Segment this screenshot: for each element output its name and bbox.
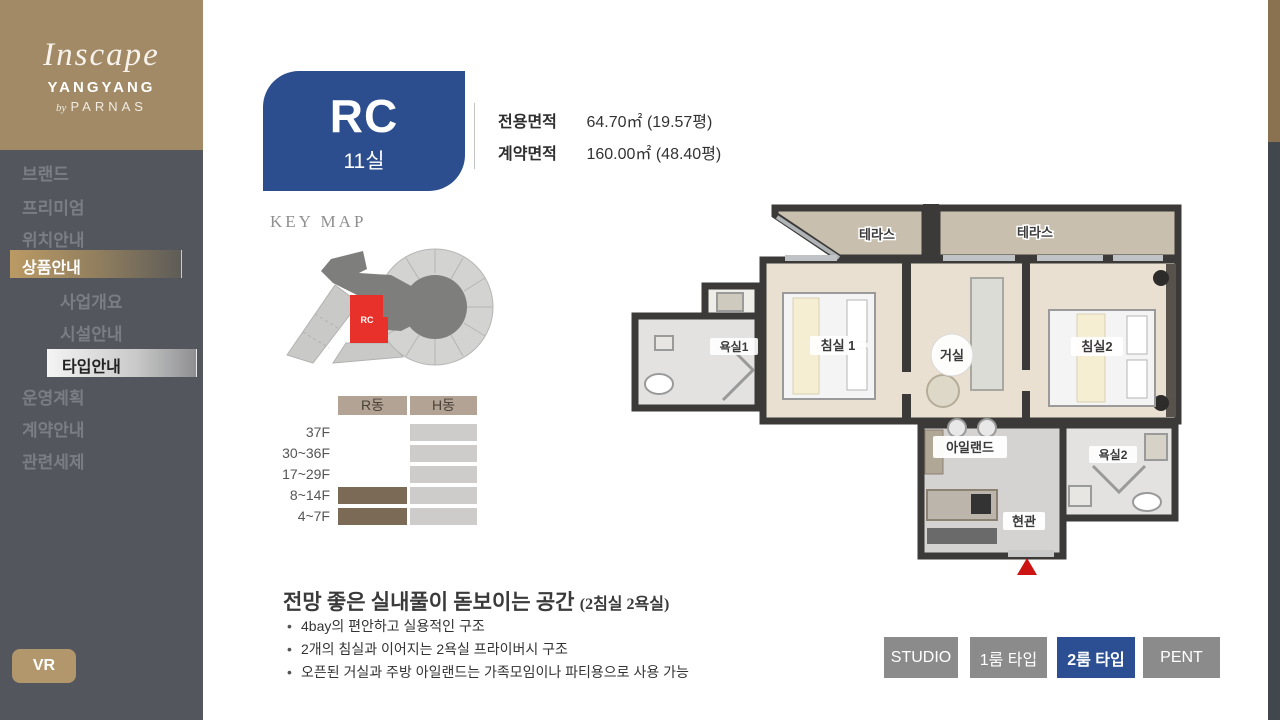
bullet-text: 2개의 침실과 이어지는 2욕실 프라이버시 구조 <box>301 641 568 657</box>
floor-table-header-1: H동 <box>410 396 477 415</box>
sidebar-item-label: 운영계획 <box>22 384 85 409</box>
sidebar-item-label: 브랜드 <box>22 160 69 185</box>
sidebar-item-label: 타입안내 <box>62 353 121 377</box>
sidebar-item-label: 계약안내 <box>22 416 85 441</box>
island-label: 아일랜드 <box>946 440 994 455</box>
floor-table-row-label: 17~29F <box>275 466 330 483</box>
description-bullet-1: •2개의 침실과 이어지는 2욕실 프라이버시 구조 <box>287 639 568 659</box>
unit-type-code: RC <box>263 89 465 143</box>
sidebar-item-label: 위치안내 <box>22 226 85 251</box>
bullet-text: 4bay의 편안하고 실용적인 구조 <box>301 618 485 634</box>
type-tab-2[interactable]: 2룸 타입 <box>1057 637 1135 678</box>
floor-cell-r <box>338 508 407 525</box>
sink-1 <box>717 293 743 311</box>
sidebar-item-3[interactable]: 상품안내 <box>10 250 182 278</box>
sidebar-item-9[interactable]: 관련세제 <box>0 448 203 470</box>
floor-cell-r <box>338 445 407 462</box>
brand-logo-sub: YANGYANG <box>48 79 156 96</box>
toilet-2 <box>1133 493 1161 511</box>
bedroom1-label: 침실 1 <box>821 338 856 353</box>
sidebar-item-6[interactable]: 타입안내 <box>47 349 197 377</box>
type-tab-1[interactable]: 1룸 타입 <box>970 637 1047 678</box>
floor-cell-h <box>410 424 477 441</box>
unit-type-badge: RC 11실 <box>263 71 465 191</box>
floor-table-row-label: 37F <box>275 424 330 441</box>
bedroom2-closet <box>1166 264 1176 417</box>
floor-table-row-label: 4~7F <box>275 508 330 525</box>
sidebar-item-label: 사업개요 <box>60 288 123 313</box>
bedroom2-label: 침실2 <box>1081 339 1112 354</box>
bullet-dot-icon: • <box>287 641 301 657</box>
bullet-dot-icon: • <box>287 618 301 634</box>
entrance-label: 현관 <box>1012 514 1036 529</box>
floor-table-row-label: 8~14F <box>275 487 330 504</box>
stool-1 <box>948 419 966 437</box>
area-row-contract: 계약면적 160.00㎡ (48.40평) <box>498 140 721 164</box>
sidebar-item-8[interactable]: 계약안내 <box>0 416 203 438</box>
description-heading: 전망 좋은 실내풀이 돋보이는 공간 (2침실 2욕실) <box>283 586 669 616</box>
stool-2 <box>978 419 996 437</box>
lounge-chair <box>927 375 959 407</box>
sidebar-item-label: 프리미엄 <box>22 194 85 219</box>
sink-2 <box>1145 434 1167 460</box>
area-row-exclusive: 전용면적 64.70㎡ (19.57평) <box>498 108 712 132</box>
living-label: 거실 <box>940 348 964 363</box>
floor-table-row-label: 30~36F <box>275 445 330 462</box>
floor-cell-h <box>410 466 477 483</box>
floor-cell-r <box>338 466 407 483</box>
entrance-arrow-icon <box>1017 558 1037 575</box>
terrace-1-label: 테라스 <box>859 227 895 242</box>
brand-logo-byline: byPARNAS <box>56 99 147 114</box>
kitchen-lower-cabinet <box>927 528 997 544</box>
terrace-2-label: 테라스 <box>1017 225 1053 240</box>
sidebar-item-label: 시설안내 <box>60 320 123 345</box>
sidebar-item-0[interactable]: 브랜드 <box>0 160 203 182</box>
toilet-1 <box>645 374 673 394</box>
sidebar-item-2[interactable]: 위치안내 <box>0 226 203 248</box>
description-bullet-0: •4bay의 편안하고 실용적인 구조 <box>287 616 485 636</box>
floor-cell-r <box>338 424 407 441</box>
cooktop <box>971 494 991 514</box>
sidebar-item-7[interactable]: 운영계획 <box>0 384 203 406</box>
sidebar-item-label: 관련세제 <box>22 448 85 473</box>
vr-button[interactable]: VR <box>12 649 76 683</box>
edge-strip-gold <box>1268 0 1280 142</box>
entrance-door <box>1008 550 1054 557</box>
type-tab-0[interactable]: STUDIO <box>884 637 958 678</box>
floor-cell-h <box>410 508 477 525</box>
floor-cell-h <box>410 487 477 504</box>
unit-room-count: 11실 <box>263 145 465 175</box>
keymap-title: KEY MAP <box>270 212 366 232</box>
keymap-tower-core <box>403 275 467 339</box>
edge-strip-dark <box>1268 142 1280 720</box>
brand-logo: Inscape YANGYANG byPARNAS <box>0 0 203 150</box>
floor-plan: 테라스 테라스 침실 1 거실 침실2 욕실1 아일랜드 욕실2 현관 <box>625 198 1185 586</box>
bullet-text: 오픈된 거실과 주방 아일랜드는 가족모임이나 파티용으로 사용 가능 <box>301 664 689 680</box>
area-divider <box>474 103 475 169</box>
sidebar-item-4[interactable]: 사업개요 <box>0 288 203 310</box>
floor-table-header-0: R동 <box>338 396 407 415</box>
terrace-2-floor <box>937 208 1178 258</box>
brand-logo-script: Inscape <box>43 37 160 74</box>
keymap-highlight-label: RC <box>361 315 374 325</box>
sofa <box>971 278 1003 390</box>
sidebar-item-1[interactable]: 프리미엄 <box>0 194 203 216</box>
bullet-dot-icon: • <box>287 664 301 680</box>
type-tab-3[interactable]: PENT <box>1143 637 1220 678</box>
floor-cell-r <box>338 487 407 504</box>
terrace-1-floor <box>775 208 925 258</box>
bath1-label: 욕실1 <box>720 339 749 354</box>
bath2-label: 욕실2 <box>1099 447 1128 462</box>
sidebar: Inscape YANGYANG byPARNAS 브랜드프리미엄위치안내상품안… <box>0 0 203 720</box>
keymap-diagram: RC <box>273 243 501 375</box>
sidebar-item-label: 상품안내 <box>22 254 81 278</box>
sidebar-item-5[interactable]: 시설안내 <box>0 320 203 342</box>
floor-availability-table: R동H동37F30~36F17~29F8~14F4~7F <box>275 396 485 531</box>
floor-cell-h <box>410 445 477 462</box>
description-bullet-2: •오픈된 거실과 주방 아일랜드는 가족모임이나 파티용으로 사용 가능 <box>287 662 689 682</box>
